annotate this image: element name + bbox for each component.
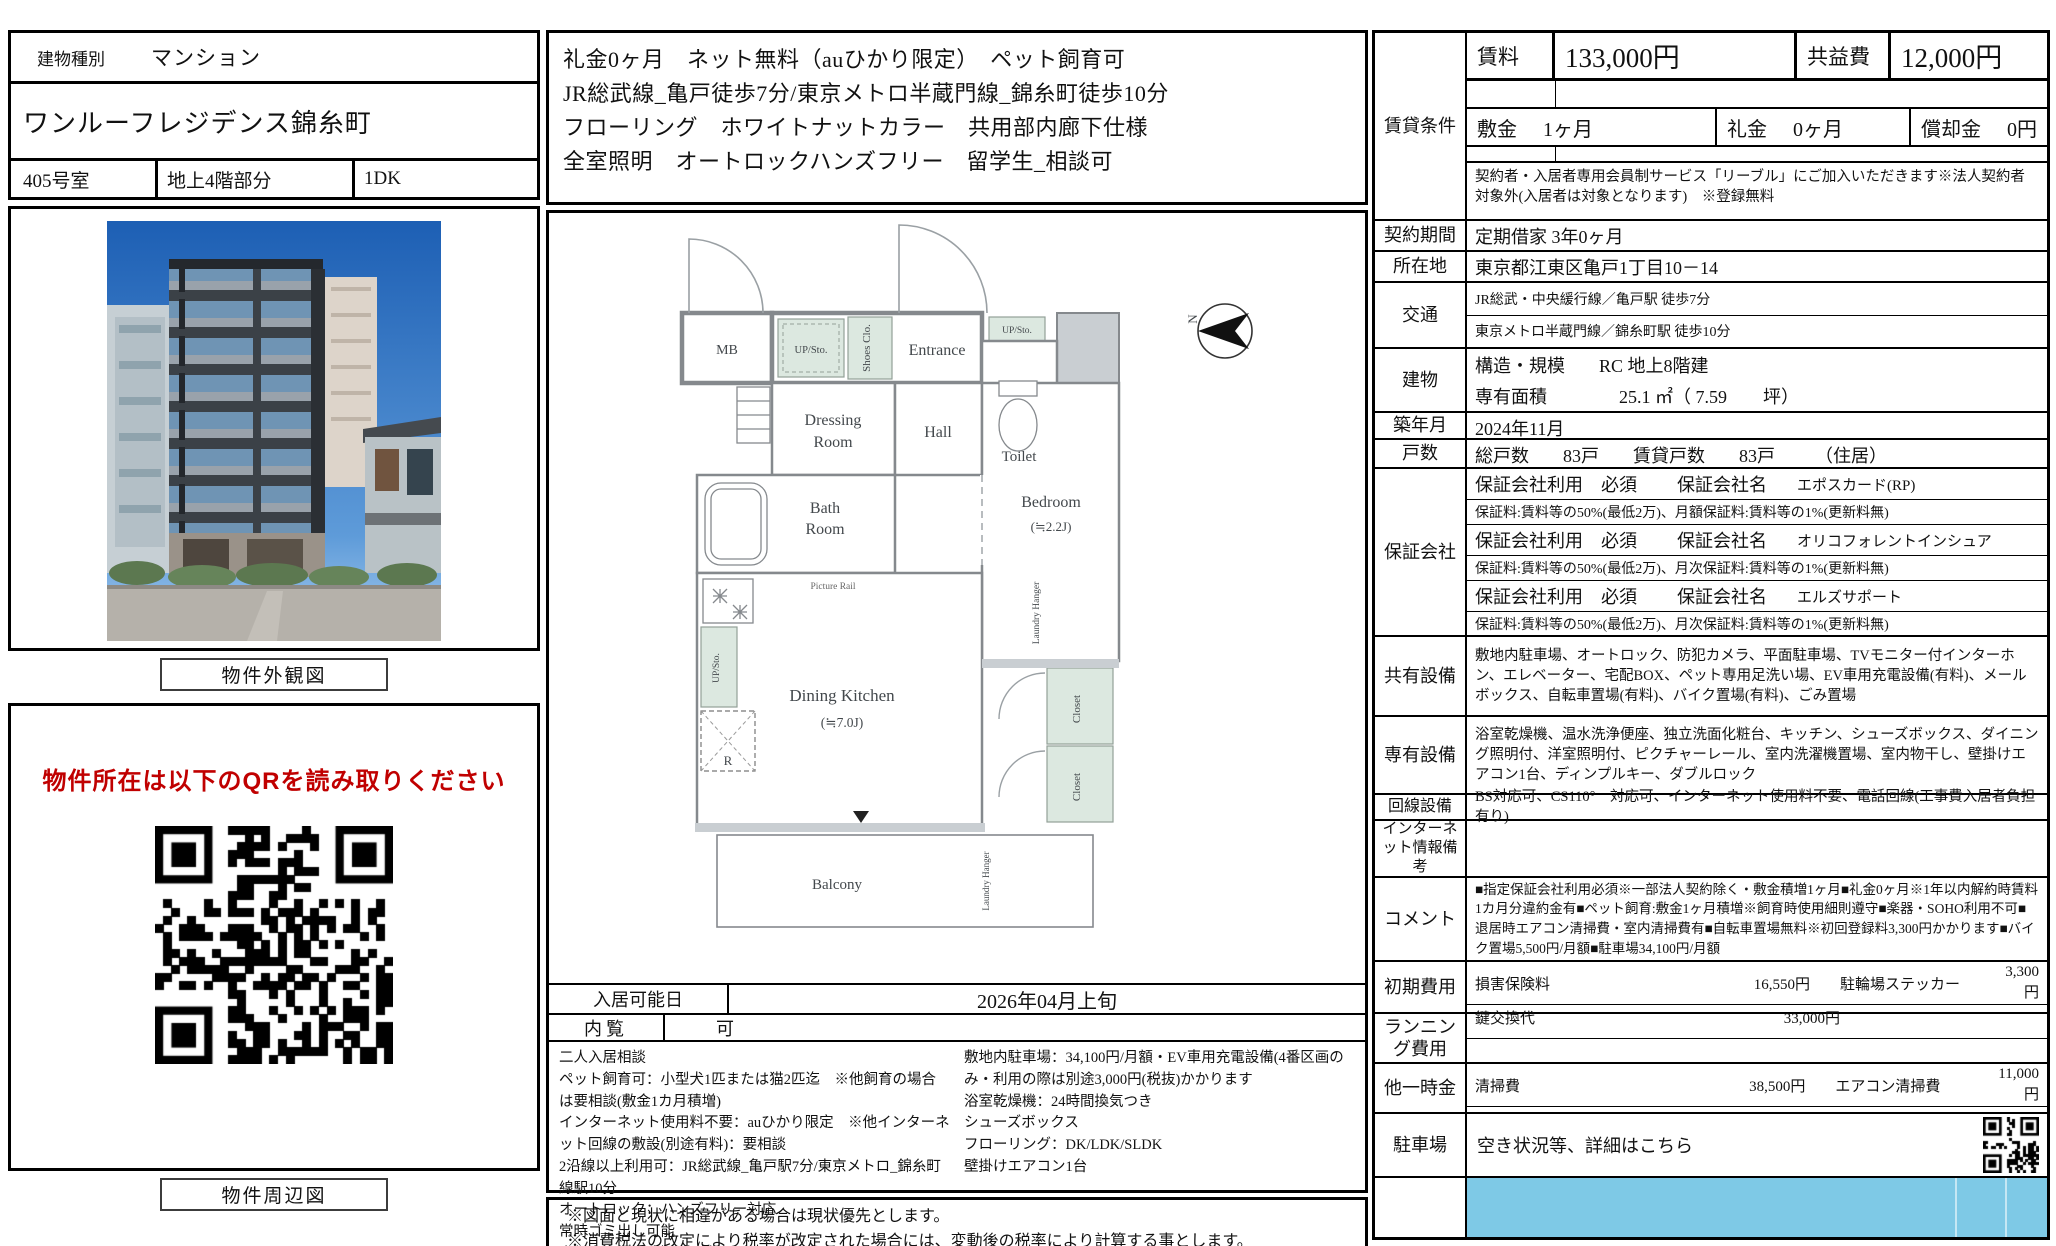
units-rent-value: 83戸 (1739, 442, 1775, 468)
fee-label: 共益費 (1797, 33, 1891, 78)
built-label: 築年月 (1375, 413, 1467, 438)
private-equipment-value: 浴室乾燥機、温水洗浄便座、独立洗面化粧台、キッチン、シューズボックス、ダイニング… (1467, 717, 2047, 793)
plan-toilet-label: Toilet (1002, 449, 1038, 465)
row-initial-cost: 初期費用 損害保険料 16,550円 駐輪場ステッカー 3,300円 鍵交換代 … (1375, 960, 2047, 1012)
row-line-equipment: 回線設備 BS対応可、CS110° 対応可、インターネット使用料不要、電話回線(… (1375, 793, 2047, 819)
note-item: 2沿線以上利用可：JR総武線_亀戸駅7分/東京メトロ_錦糸町線駅10分 (559, 1157, 950, 1201)
units-total-label: 総戸数 (1475, 442, 1529, 468)
building-photo (107, 221, 441, 641)
highlights-box: 礼金0ヶ月 ネット無料（auひかり限定） ペット飼育可 JR総武線_亀戸徒歩7分… (546, 30, 1368, 205)
row-building: 建物 構造・規模 RC 地上8階建 専有面積 25.1 ㎡（ 7.59 坪） (1375, 347, 2047, 411)
building-type-row: 建物種別 マンション (8, 30, 540, 84)
plan-bath-label2: Room (805, 521, 845, 538)
deposit-label: 敷金 (1477, 113, 1517, 142)
amortization-label: 償却金 (1921, 113, 1981, 142)
guarantor-label: 保証会社 (1375, 469, 1467, 635)
row-running-cost: ランニング費用 (1375, 1012, 2047, 1062)
note-item: 浴室乾燥機：24時間換気つき (964, 1092, 1355, 1114)
comment-value: ■指定保証会社利用必須※一部法人契約除く・敷金積増1ヶ月■礼金0ヶ月※1年以内解… (1467, 878, 2047, 960)
guarantor-detail: 保証料:賃料等の50%(最低2万)、月額保証料:賃料等の1%(更新料無) (1467, 499, 2047, 524)
parking-qr-code (1983, 1117, 2039, 1173)
qr-notice-text: 物件所在は以下のQRを読み取りください (11, 761, 537, 796)
rent-label: 賃料 (1467, 33, 1555, 78)
disclaimer-line: ※図面と現状に相違がある場合は現状優先とします。 (567, 1205, 1347, 1230)
plan-dressing-label2: Room (813, 434, 853, 451)
comment-label: コメント (1375, 878, 1467, 960)
building-type-label: 建物種別 (37, 45, 105, 70)
floorplan-area: MB UP/Sto. Shoes Clo. Entrance UP/Sto. D… (549, 213, 1365, 983)
guarantor-detail: 保証料:賃料等の50%(最低2万)、月次保証料:賃料等の1%(更新料無) (1467, 611, 2047, 636)
cleaning-value: 38,500円 (1670, 1075, 1806, 1096)
floor-plan: MB UP/Sto. Shoes Clo. Entrance UP/Sto. D… (627, 213, 1287, 973)
row-guarantor: 保証会社 保証会社利用 必須 保証会社名 エポスカード(RP) 保証料:賃料等の… (1375, 467, 2047, 635)
movein-value: 2026年04月上旬 (729, 985, 1365, 1013)
guarantor-name-label: 保証会社名 (1677, 527, 1767, 553)
property-name: ワンルーフレジデンス錦糸町 (8, 81, 540, 161)
insurance-value: 16,550円 (1672, 973, 1810, 994)
plan-bedroom-label: Bedroom (1021, 494, 1081, 511)
row-internet-notes: インターネット情報備考 (1375, 819, 2047, 876)
units-rent-label: 賃貸戸数 (1633, 442, 1705, 468)
initial-cost-label: 初期費用 (1375, 962, 1467, 1012)
plan-closet-label: Closet (1071, 773, 1083, 801)
notes-right-column: 敷地内駐車場：34,100円/月額・EV車用充電設備(4番区画のみ・利用の際は別… (964, 1048, 1355, 1182)
parking-label: 駐車場 (1375, 1114, 1467, 1176)
guarantor-required: 保証会社利用 必須 (1475, 471, 1637, 497)
plan-picture-rail-label: Picture Rail (810, 582, 855, 592)
plan-fridge-label: R (724, 753, 733, 768)
plan-upsto-label: UP/Sto. (712, 653, 722, 683)
amortization-value: 0円 (2007, 113, 2037, 142)
guarantor-name: エルズサポート (1797, 586, 1902, 607)
access-line-2: 東京メトロ半蔵門線／錦糸町駅 徒歩10分 (1467, 315, 2047, 348)
disclaimer-line: ※消費税法の改定により税率が改定された場合には、変動後の税率により計算する事とし… (567, 1230, 1347, 1246)
location-qr-code (155, 826, 393, 1064)
guarantor-name: オリコフォレントインシュア (1797, 530, 1992, 551)
fee-value: 12,000円 (1891, 33, 2047, 78)
guarantor-name-label: 保証会社名 (1677, 583, 1767, 609)
note-item: フローリング：DK/LDK/SLDK (964, 1135, 1355, 1157)
plan-north-label: N (1185, 314, 1200, 324)
note-item: 壁掛けエアコン1台 (964, 1157, 1355, 1179)
plan-laundry-label: Laundry Hanger (1032, 581, 1042, 644)
viewing-value: 可 (665, 1015, 785, 1040)
private-equipment-label: 専有設備 (1375, 717, 1467, 793)
plan-entrance-label: Entrance (909, 342, 966, 359)
guarantor-name-label: 保証会社名 (1677, 471, 1767, 497)
keymoney-label: 礼金 (1727, 113, 1767, 142)
address-value: 東京都江東区亀戸1丁目10－14 (1467, 252, 2047, 282)
row-shared-equipment: 共有設備 敷地内駐車場、オートロック、防犯カメラ、平面駐車場、TVモニター付イン… (1375, 635, 2047, 715)
notes-section: 二人入居相談 ペット飼育可：小型犬1匹または猫2匹迄 ※他飼育の場合は要相談(敷… (549, 1040, 1365, 1190)
access-label: 交通 (1375, 283, 1467, 347)
building-type-value: マンション (151, 42, 261, 72)
internet-notes-value (1467, 821, 2047, 876)
movein-label: 入居可能日 (549, 985, 729, 1013)
footer-blank-label (1375, 1178, 1467, 1237)
property-flyer: 建物種別 マンション ワンルーフレジデンス錦糸町 405号室 地上4階部分 1D… (0, 0, 2056, 1246)
ac-cleaning-value: 11,000円 (1998, 1066, 2039, 1104)
plan-bath-label: Bath (810, 500, 840, 517)
note-item: シューズボックス (964, 1113, 1355, 1135)
plan-bedroom-size: (≒2.2J) (1031, 519, 1072, 534)
deposit-row: 敷金1ヶ月 礼金0ヶ月 償却金0円 (1467, 109, 2047, 147)
plan-upsto-label: UP/Sto. (1002, 326, 1032, 336)
row-footer-blank (1375, 1176, 2047, 1237)
map-caption: 物件周辺図 (160, 1178, 388, 1211)
left-column: 建物種別 マンション ワンルーフレジデンス錦糸町 405号室 地上4階部分 1D… (8, 30, 540, 1211)
units-total-value: 83戸 (1563, 442, 1599, 468)
plan-dk-size: (≒7.0J) (821, 715, 863, 730)
row-address: 所在地 東京都江東区亀戸1丁目10－14 (1375, 250, 2047, 281)
line-equipment-label: 回線設備 (1375, 795, 1467, 819)
ac-cleaning-label: エアコン清掃費 (1835, 1075, 1998, 1096)
room-number: 405号室 (8, 158, 158, 200)
photo-caption: 物件外観図 (160, 658, 388, 691)
address-label: 所在地 (1375, 252, 1467, 281)
running-cost-label: ランニング費用 (1375, 1014, 1467, 1062)
middle-column: 礼金0ヶ月 ネット無料（auひかり限定） ペット飼育可 JR総武線_亀戸徒歩7分… (546, 30, 1368, 1246)
row-built: 築年月 2024年11月 (1375, 411, 2047, 438)
room-info-row: 405号室 地上4階部分 1DK (8, 158, 540, 200)
row-other-onetime: 他一時金 清掃費 38,500円 エアコン清掃費 11,000円 (1375, 1062, 2047, 1112)
units-label: 戸数 (1375, 440, 1467, 467)
structure-value: RC 地上8階建 (1599, 352, 1709, 378)
row-comment: コメント ■指定保証会社利用必須※一部法人契約除く・敷金積増1ヶ月■礼金0ヶ月※… (1375, 876, 2047, 960)
parking-info-text: 空き状況等、詳細はこちら (1477, 1132, 1693, 1158)
exterior-photo-frame (8, 206, 540, 651)
blank-strip (1467, 81, 2047, 109)
row-access: 交通 JR総武・中央緩行線／亀戸駅 徒歩7分 東京メトロ半蔵門線／錦糸町駅 徒歩… (1375, 281, 2047, 347)
rent-header: 賃料 133,000円 共益費 12,000円 (1467, 33, 2047, 81)
rent-value: 133,000円 (1555, 33, 1797, 78)
sticker-label: 駐輪場ステッカー (1840, 973, 2005, 994)
parking-availability-cell (1467, 1178, 2047, 1237)
access-line-1: JR総武・中央緩行線／亀戸駅 徒歩7分 (1467, 283, 2047, 315)
note-item: ペット飼育可：小型犬1匹または猫2匹迄 ※他飼育の場合は要相談(敷金1カ月積増) (559, 1070, 950, 1114)
location-qr-frame: 物件所在は以下のQRを読み取りください (8, 703, 540, 1171)
guarantor-required: 保証会社利用 必須 (1475, 527, 1637, 553)
highlight-line: フローリング ホワイトナットカラー 共用部内廊下仕様 (563, 111, 1351, 145)
sticker-value: 3,300円 (2005, 964, 2039, 1002)
floorplan-box: MB UP/Sto. Shoes Clo. Entrance UP/Sto. D… (546, 210, 1368, 1193)
row-private-equipment: 専有設備 浴室乾燥機、温水洗浄便座、独立洗面化粧台、キッチン、シューズボックス、… (1375, 715, 2047, 793)
shared-equipment-value: 敷地内駐車場、オートロック、防犯カメラ、平面駐車場、TVモニター付インターホン、… (1467, 637, 2047, 715)
plan-hall-label: Hall (924, 424, 952, 441)
guarantor-required: 保証会社利用 必須 (1475, 583, 1637, 609)
movein-row: 入居可能日 2026年04月上旬 (549, 983, 1365, 1013)
row-parking: 駐車場 空き状況等、詳細はこちら (1375, 1112, 2047, 1176)
contract-period-label: 契約期間 (1375, 221, 1467, 250)
highlight-line: 全室照明 オートロックハンズフリー 留学生_相談可 (563, 145, 1351, 179)
guarantor-detail: 保証料:賃料等の50%(最低2万)、月次保証料:賃料等の1%(更新料無) (1467, 555, 2047, 580)
row-units: 戸数 総戸数 83戸 賃貸戸数 83戸 （住居） (1375, 438, 2047, 467)
deposit-value: 1ヶ月 (1543, 113, 1593, 142)
highlight-line: JR総武線_亀戸徒歩7分/東京メトロ半蔵門線_錦糸町徒歩10分 (563, 77, 1351, 111)
note-item: インターネット使用料不要：auひかり限定 ※他インターネット回線の敷設(別途有料… (559, 1113, 950, 1157)
insurance-label: 損害保険料 (1475, 973, 1672, 994)
line-equipment-value: BS対応可、CS110° 対応可、インターネット使用料不要、電話回線(工事費入居… (1467, 795, 2047, 819)
room-floor: 地上4階部分 (155, 158, 355, 200)
contract-period-value: 定期借家 3年0ヶ月 (1467, 221, 2047, 251)
note-item: 敷地内駐車場：34,100円/月額・EV車用充電設備(4番区画のみ・利用の際は別… (964, 1048, 1355, 1092)
area-value: 25.1 ㎡（ 7.59 坪） (1619, 383, 1799, 409)
structure-label: 構造・規模 (1475, 352, 1565, 378)
plan-dressing-label: Dressing (805, 412, 862, 429)
plan-mb-label: MB (716, 343, 738, 358)
disclaimer-box: ※図面と現状に相違がある場合は現状優先とします。 ※消費税法の改定により税率が改… (546, 1197, 1368, 1246)
units-note: （住居） (1815, 442, 1887, 468)
membership-note: 契約者・入居者専用会員制サービス「リーブル」にご加入いただきます※法人契約者対象… (1467, 163, 2047, 219)
cleaning-label: 清掃費 (1475, 1075, 1670, 1096)
area-label: 専有面積 (1475, 383, 1547, 409)
row-contract-period: 契約期間 定期借家 3年0ヶ月 (1375, 219, 2047, 250)
details-table: 賃貸条件 賃料 133,000円 共益費 12,000円 敷金1ヶ月 礼金0ヶ月… (1372, 30, 2050, 1240)
internet-notes-label: インターネット情報備考 (1375, 821, 1467, 876)
plan-closet-label: Closet (1071, 695, 1083, 723)
room-layout: 1DK (352, 158, 540, 200)
running-cost-blank (1467, 1038, 2047, 1063)
guarantor-name: エポスカード(RP) (1797, 474, 1915, 495)
highlight-line: 礼金0ヶ月 ネット無料（auひかり限定） ペット飼育可 (563, 43, 1351, 77)
other-onetime-label: 他一時金 (1375, 1064, 1467, 1112)
plan-laundry-label: Laundry Hanger (981, 851, 991, 910)
plan-balcony-label: Balcony (812, 877, 862, 893)
plan-dk-label: Dining Kitchen (789, 686, 895, 705)
keymoney-value: 0ヶ月 (1793, 113, 1843, 142)
viewing-label: 内覧 (549, 1015, 665, 1040)
running-cost-blank (1467, 1014, 2047, 1038)
plan-upsto-label: UP/Sto. (795, 345, 828, 356)
note-item: 二人入居相談 (559, 1048, 950, 1070)
building-label: 建物 (1375, 349, 1467, 411)
notes-left-column: 二人入居相談 ペット飼育可：小型犬1匹または猫2匹迄 ※他飼育の場合は要相談(敷… (559, 1048, 950, 1182)
plan-shoes-label: Shoes Clo. (861, 324, 873, 372)
rental-terms-label: 賃貸条件 (1375, 33, 1467, 219)
row-rental-terms: 賃貸条件 賃料 133,000円 共益費 12,000円 敷金1ヶ月 礼金0ヶ月… (1375, 33, 2047, 219)
shared-equipment-label: 共有設備 (1375, 637, 1467, 715)
other-onetime-blank (1467, 1106, 2047, 1112)
blank-strip (1467, 147, 2047, 163)
viewing-row: 内覧 可 (549, 1013, 1365, 1040)
built-value: 2024年11月 (1467, 413, 2047, 443)
